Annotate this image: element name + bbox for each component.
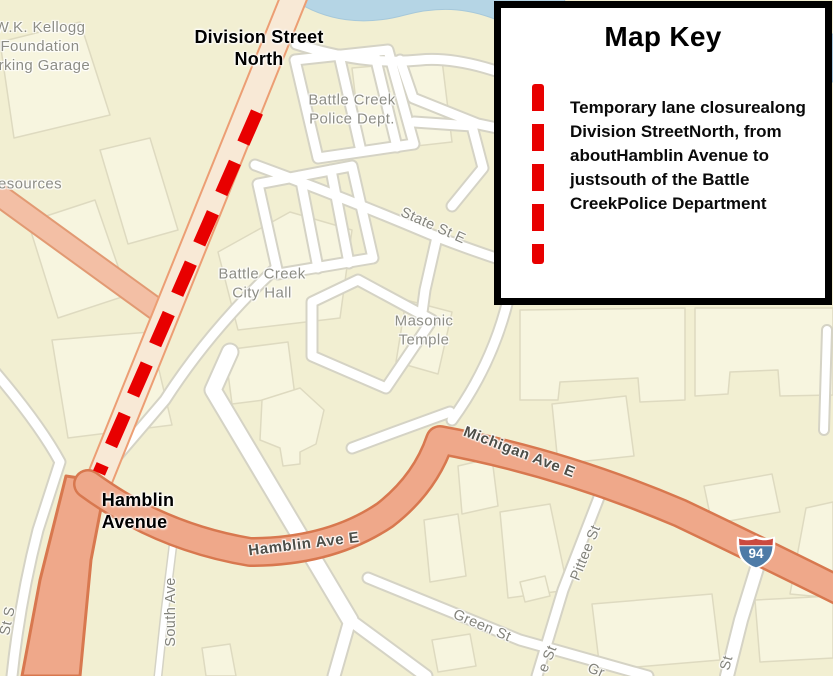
map-key-panel: Map Key Temporary lane closurealong Divi… xyxy=(494,1,832,305)
map-key-description: Temporary lane closurealong Division Str… xyxy=(570,96,822,216)
map-viewport: W.K. KelloggFoundationarking Garage esou… xyxy=(0,0,833,676)
label-city-hall: Battle CreekCity Hall xyxy=(218,265,305,303)
shield-route-number: 94 xyxy=(735,546,777,561)
label-resources-partial: esources xyxy=(0,176,62,195)
closure-legend-dash-icon xyxy=(532,84,544,264)
label-kellogg-garage: W.K. KelloggFoundationarking Garage xyxy=(0,19,90,75)
label-south-ave: South Ave xyxy=(162,577,180,646)
map-key-title: Map Key xyxy=(501,21,825,53)
annotation-division-street-north: Division StreetNorth xyxy=(194,27,323,71)
label-police-dept: Battle CreekPolice Dept. xyxy=(308,91,395,129)
annotation-hamblin-avenue: HamblinAvenue xyxy=(102,490,174,534)
interstate-94-shield: 94 xyxy=(735,535,777,569)
label-masonic-temple: MasonicTemple xyxy=(395,312,454,350)
